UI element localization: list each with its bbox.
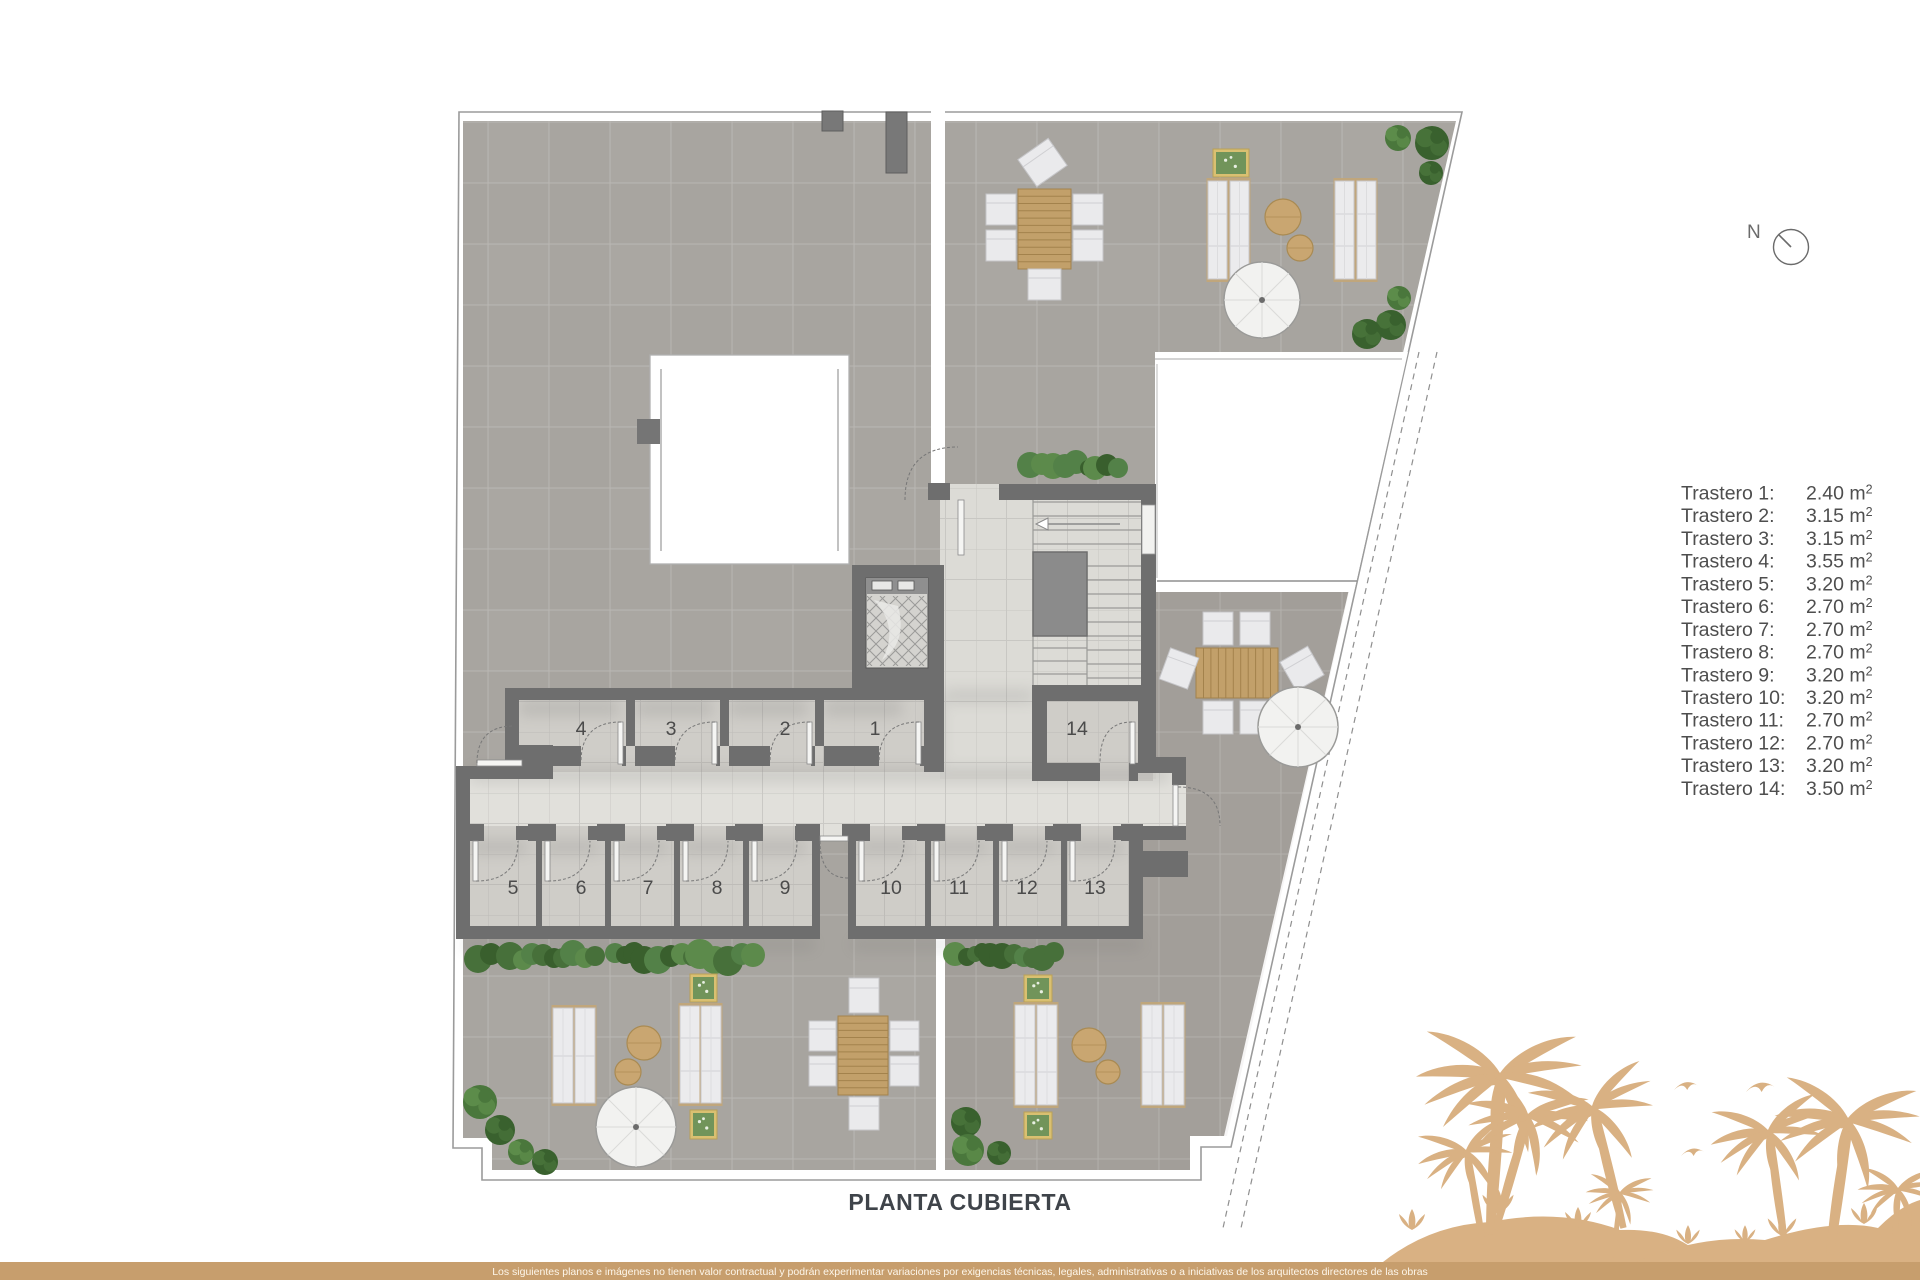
svg-text:PLANTA CUBIERTA: PLANTA CUBIERTA: [848, 1189, 1071, 1215]
svg-text:7: 7: [643, 877, 654, 899]
svg-text:2.70 m2: 2.70 m2: [1806, 710, 1873, 732]
svg-text:Trastero 12:: Trastero 12:: [1681, 732, 1785, 754]
svg-text:8: 8: [712, 877, 723, 899]
svg-text:3.20 m2: 3.20 m2: [1806, 573, 1873, 595]
svg-text:Trastero 8:: Trastero 8:: [1681, 642, 1775, 664]
svg-text:2.70 m2: 2.70 m2: [1806, 619, 1873, 641]
svg-text:Trastero 3:: Trastero 3:: [1681, 528, 1775, 550]
svg-text:2.70 m2: 2.70 m2: [1806, 596, 1873, 618]
svg-text:Los siguientes planos e imágen: Los siguientes planos e imágenes no tien…: [492, 1266, 1428, 1278]
svg-text:3.15 m2: 3.15 m2: [1806, 528, 1873, 550]
svg-text:Trastero 9:: Trastero 9:: [1681, 664, 1775, 686]
svg-text:3.50 m2: 3.50 m2: [1806, 778, 1873, 800]
svg-text:13: 13: [1084, 877, 1106, 899]
svg-text:Trastero 13:: Trastero 13:: [1681, 755, 1785, 777]
svg-text:Trastero 11:: Trastero 11:: [1681, 710, 1784, 732]
svg-text:3.55 m2: 3.55 m2: [1806, 551, 1873, 573]
svg-text:Trastero 2:: Trastero 2:: [1681, 505, 1775, 527]
svg-text:Trastero 5:: Trastero 5:: [1681, 573, 1775, 595]
svg-text:3.20 m2: 3.20 m2: [1806, 664, 1873, 686]
svg-text:2.70 m2: 2.70 m2: [1806, 732, 1873, 754]
svg-text:Trastero 10:: Trastero 10:: [1681, 687, 1785, 709]
svg-text:2.70 m2: 2.70 m2: [1806, 642, 1873, 664]
svg-text:Trastero 1:: Trastero 1:: [1681, 483, 1775, 505]
svg-text:3.20 m2: 3.20 m2: [1806, 755, 1873, 777]
svg-text:2: 2: [780, 718, 791, 740]
svg-text:2.40 m2: 2.40 m2: [1806, 483, 1873, 505]
svg-text:1: 1: [870, 718, 881, 740]
svg-text:10: 10: [880, 877, 902, 899]
svg-text:11: 11: [949, 877, 969, 899]
svg-text:N: N: [1747, 222, 1761, 243]
svg-text:3: 3: [666, 718, 677, 740]
svg-text:Trastero 14:: Trastero 14:: [1681, 778, 1785, 800]
svg-text:Trastero 6:: Trastero 6:: [1681, 596, 1775, 618]
svg-text:6: 6: [576, 877, 587, 899]
svg-text:12: 12: [1016, 877, 1038, 899]
svg-text:3.15 m2: 3.15 m2: [1806, 505, 1873, 527]
svg-text:9: 9: [780, 877, 791, 899]
svg-text:Trastero 7:: Trastero 7:: [1681, 619, 1775, 641]
svg-text:3.20 m2: 3.20 m2: [1806, 687, 1873, 709]
svg-text:14: 14: [1066, 718, 1088, 740]
svg-text:4: 4: [576, 718, 587, 740]
svg-text:Trastero 4:: Trastero 4:: [1681, 551, 1775, 573]
svg-text:5: 5: [508, 877, 519, 899]
